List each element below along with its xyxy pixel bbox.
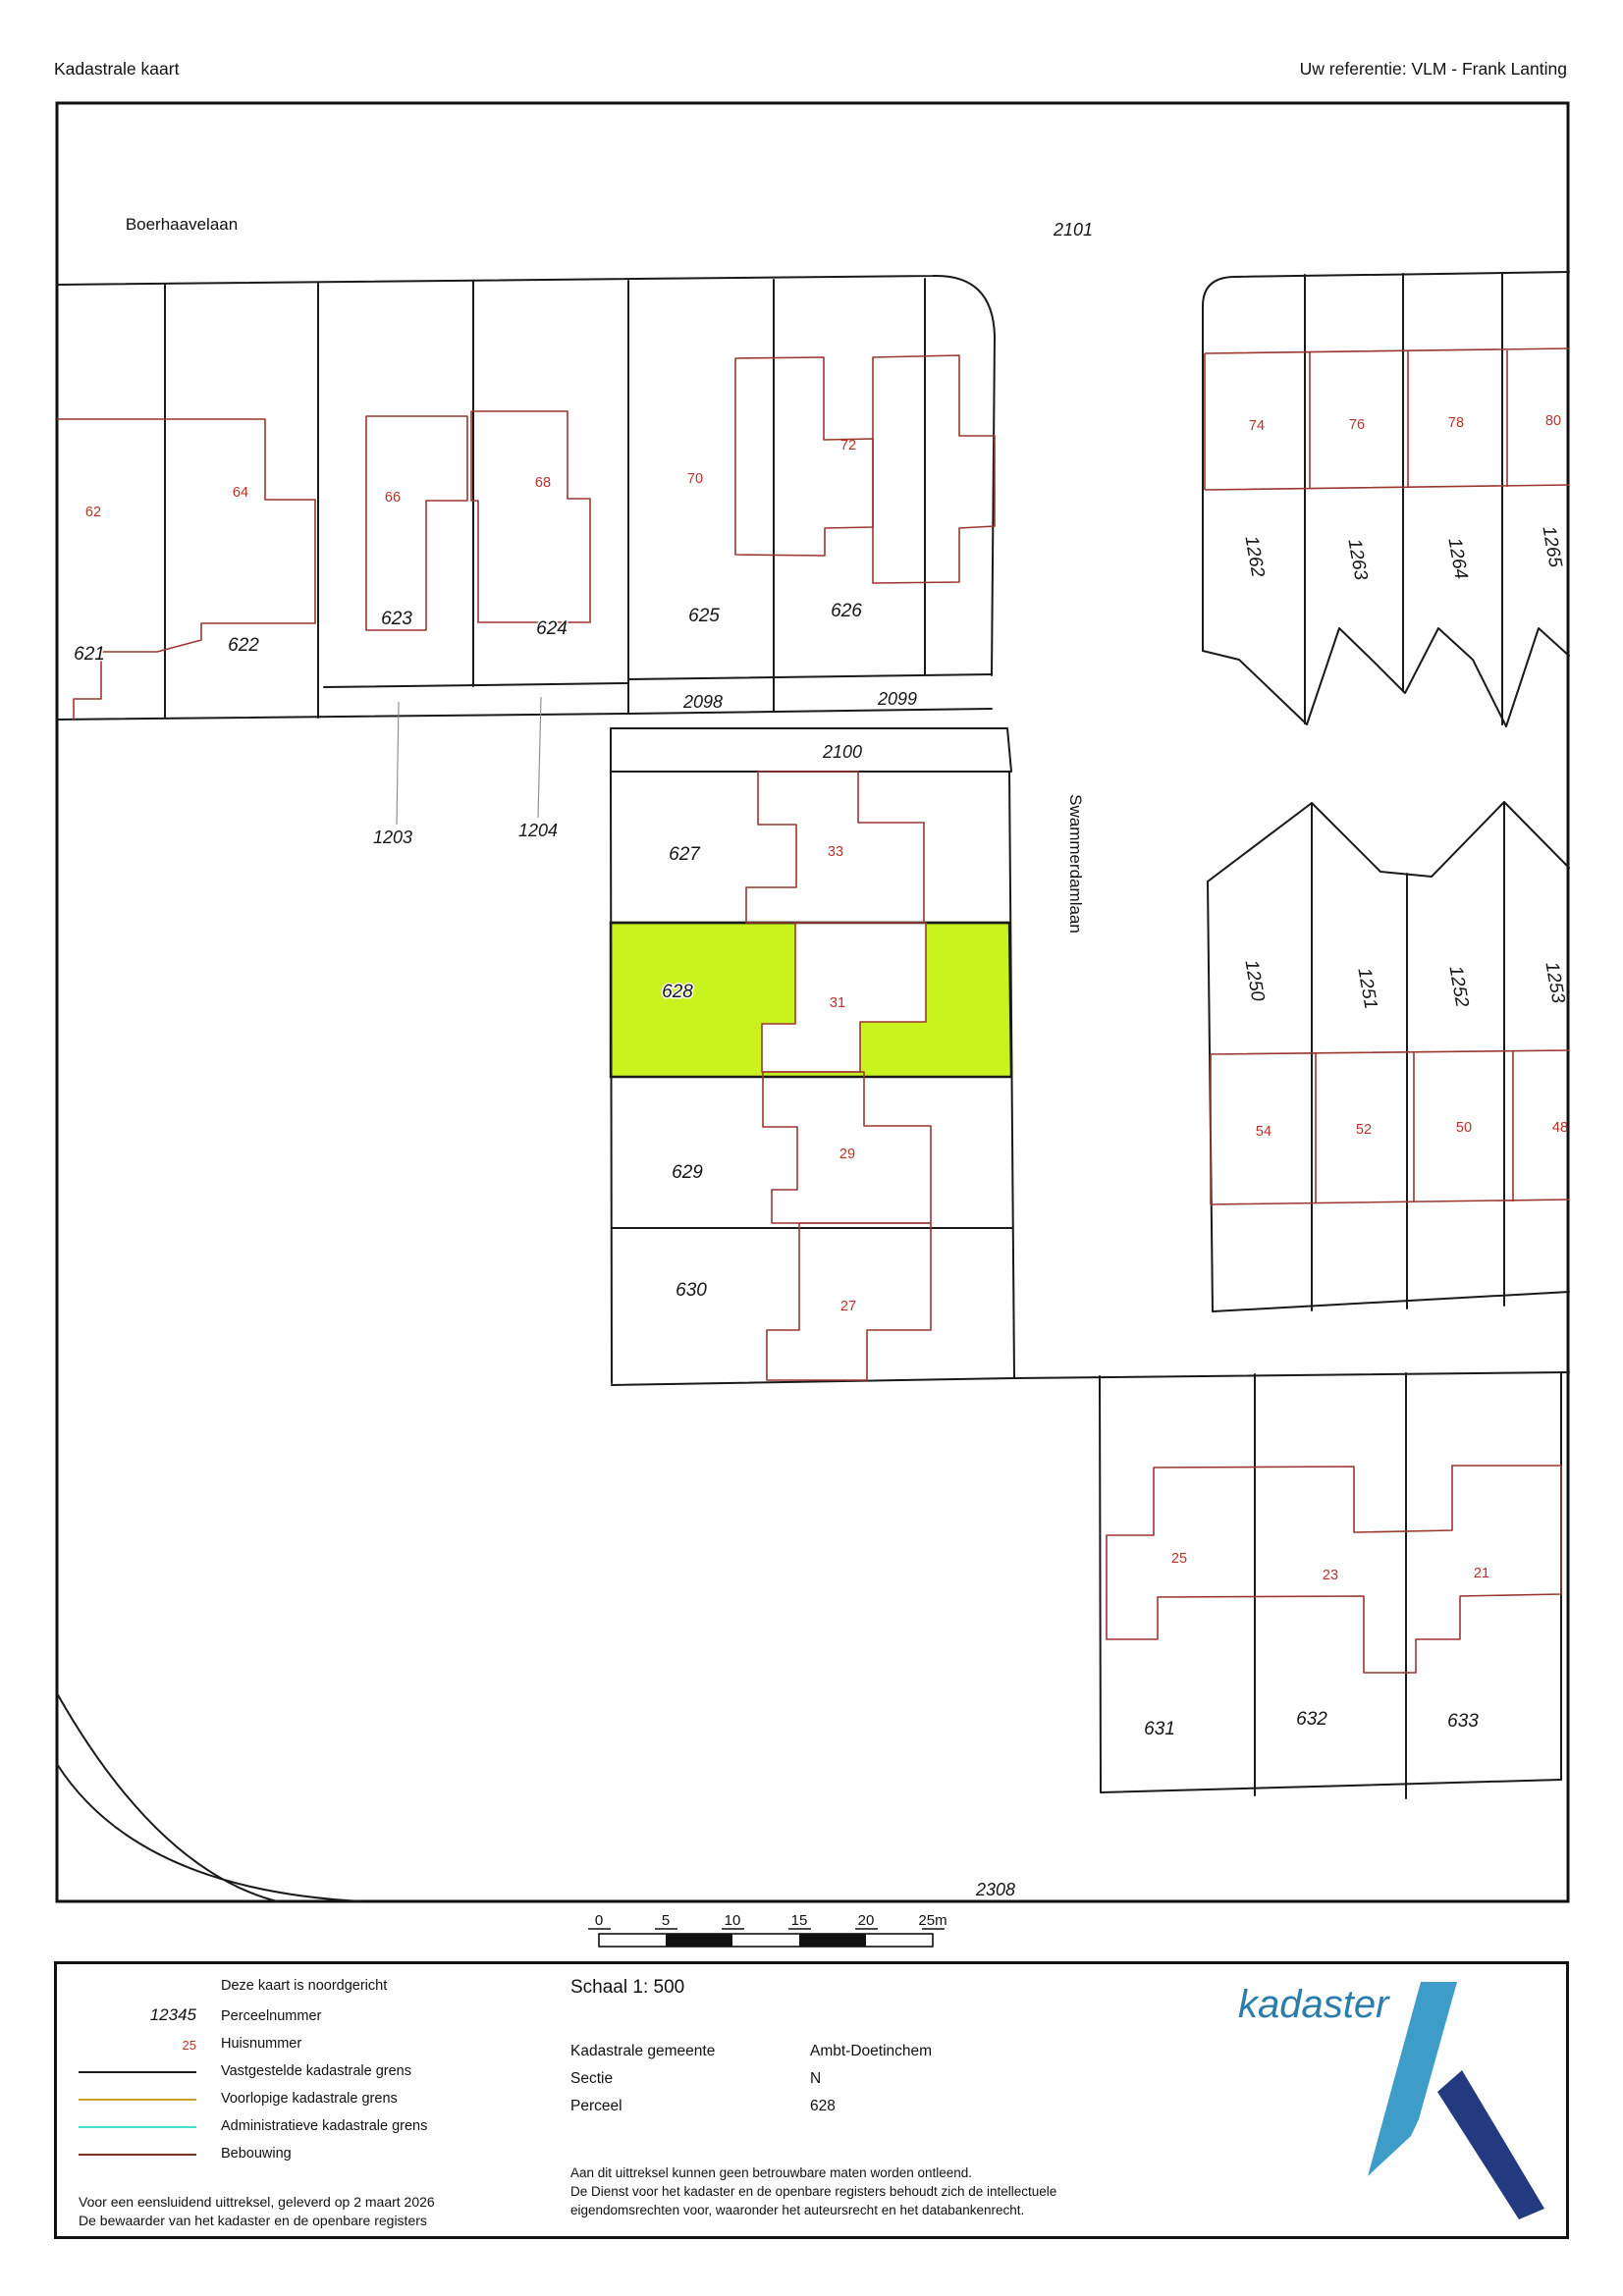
street-label-swammerdamlaan: Swammerdamlaan bbox=[1066, 794, 1085, 934]
parcel-label-621: 621 bbox=[74, 644, 105, 665]
house-number-80: 80 bbox=[1545, 413, 1561, 429]
parcel-label-623: 623 bbox=[381, 609, 412, 629]
scale-text: Schaal 1: 500 bbox=[570, 1977, 684, 1999]
legend-provisional-boundary-line bbox=[79, 2099, 196, 2101]
municipality-label: Kadastrale gemeente bbox=[570, 2043, 715, 2060]
legend-parcelnumber-sample: 12345 bbox=[77, 2005, 196, 2025]
parcel-label-632: 632 bbox=[1296, 1709, 1327, 1730]
parcel-label: Perceel bbox=[570, 2098, 622, 2115]
parcel-label-624: 624 bbox=[536, 618, 568, 639]
house-number-29: 29 bbox=[839, 1147, 855, 1162]
kadaster-logo-dark-blade bbox=[1437, 2070, 1544, 2219]
legend-administrative-boundary-line bbox=[79, 2126, 196, 2128]
scalebar-tick-25m: 25m bbox=[918, 1912, 947, 1929]
document-title: Kadastrale kaart bbox=[54, 59, 179, 80]
kadaster-logo-text: kadaster bbox=[1238, 1983, 1390, 2026]
area-label-2100: 2100 bbox=[822, 742, 862, 762]
house-number-76: 76 bbox=[1349, 417, 1365, 433]
house-number-33: 33 bbox=[828, 844, 843, 860]
parcel-boundary bbox=[1100, 1376, 1101, 1792]
parcel-label-629: 629 bbox=[672, 1162, 703, 1183]
house-number-68: 68 bbox=[535, 475, 551, 491]
section-label: Sectie bbox=[570, 2070, 613, 2088]
parcel-label-622: 622 bbox=[228, 635, 259, 656]
disclaimer-line: De Dienst voor het kadaster en de openba… bbox=[570, 2182, 1056, 2201]
section-value: N bbox=[810, 2070, 821, 2088]
house-number-74: 74 bbox=[1249, 418, 1265, 434]
legend-administrative-boundary-label: Administratieve kadastrale grens bbox=[221, 2118, 427, 2134]
legend-housenumber-label: Huisnummer bbox=[221, 2036, 301, 2052]
house-number-48: 48 bbox=[1552, 1120, 1568, 1136]
house-number-52: 52 bbox=[1356, 1122, 1372, 1138]
house-number-21: 21 bbox=[1474, 1566, 1489, 1581]
house-number-25: 25 bbox=[1171, 1551, 1187, 1567]
kadaster-logo: kadaster bbox=[1220, 1970, 1603, 2231]
legend-parcelnumber-label: Perceelnummer bbox=[221, 2008, 321, 2024]
house-number-27: 27 bbox=[840, 1299, 856, 1314]
parcel-label-630: 630 bbox=[676, 1280, 707, 1301]
legend-north-note: Deze kaart is noordgericht bbox=[221, 1978, 387, 1994]
area-label-1204: 1204 bbox=[518, 821, 558, 840]
scale-bar bbox=[599, 1934, 933, 1947]
house-number-62: 62 bbox=[85, 505, 101, 520]
scalebar-tick-0: 0 bbox=[595, 1912, 603, 1929]
parcel-value: 628 bbox=[810, 2098, 836, 2115]
area-label-2099: 2099 bbox=[877, 689, 917, 709]
legend-fixed-boundary-line bbox=[79, 2071, 196, 2073]
legend-fixed-boundary-label: Vastgestelde kadastrale grens bbox=[221, 2063, 411, 2079]
legend-keeper-note: De bewaarder van het kadaster en de open… bbox=[79, 2213, 427, 2228]
scalebar-tick-5: 5 bbox=[662, 1912, 670, 1929]
parcel-label-633: 633 bbox=[1447, 1711, 1479, 1732]
house-number-23: 23 bbox=[1323, 1568, 1338, 1583]
house-number-78: 78 bbox=[1448, 415, 1464, 431]
kadaster-logo-graphic: kadaster bbox=[1220, 1970, 1603, 2231]
legend-provisional-boundary-label: Voorlopige kadastrale grens bbox=[221, 2091, 398, 2107]
municipality-value: Ambt-Doetinchem bbox=[810, 2043, 932, 2060]
area-label-1203: 1203 bbox=[373, 828, 412, 847]
scalebar-tick-15: 15 bbox=[791, 1912, 808, 1929]
house-number-50: 50 bbox=[1456, 1120, 1472, 1136]
area-label-2098: 2098 bbox=[682, 692, 723, 712]
house-number-31: 31 bbox=[830, 995, 845, 1011]
scale-bar-segment bbox=[666, 1934, 732, 1947]
legend-housenumber-sample: 25 bbox=[77, 2038, 196, 2053]
disclaimer-text: Aan dit uittreksel kunnen geen betrouwba… bbox=[570, 2163, 1056, 2219]
area-label-2308: 2308 bbox=[975, 1880, 1015, 1899]
scalebar-tick-10: 10 bbox=[725, 1912, 741, 1929]
area-label-2101: 2101 bbox=[1053, 220, 1093, 240]
house-number-70: 70 bbox=[687, 471, 703, 487]
legend-building-line bbox=[79, 2154, 196, 2156]
kadastrale-kaart-page: BoerhaavelaanSwammerdamlaan2101209820992… bbox=[0, 0, 1623, 2296]
parcel-label-627: 627 bbox=[669, 844, 701, 865]
house-number-66: 66 bbox=[385, 490, 401, 506]
scale-bar-segment bbox=[799, 1934, 866, 1947]
parcel-label-625: 625 bbox=[688, 606, 720, 626]
parcel-label-631: 631 bbox=[1144, 1719, 1175, 1739]
parcel-label-628: 628 bbox=[662, 982, 693, 1002]
disclaimer-line: eigendomsrechten voor, waaronder het aut… bbox=[570, 2201, 1056, 2219]
document-reference: Uw referentie: VLM - Frank Lanting bbox=[1300, 59, 1567, 80]
parcel-label-626: 626 bbox=[831, 601, 862, 621]
disclaimer-line: Aan dit uittreksel kunnen geen betrouwba… bbox=[570, 2163, 1056, 2182]
scalebar-tick-20: 20 bbox=[858, 1912, 875, 1929]
house-number-54: 54 bbox=[1256, 1124, 1271, 1140]
legend-extract-note: Voor een eensluidend uittreksel, gelever… bbox=[79, 2194, 435, 2210]
house-number-72: 72 bbox=[840, 438, 856, 454]
legend-box: Deze kaart is noordgericht 12345 Perceel… bbox=[54, 1961, 1569, 2239]
cadastral-map: BoerhaavelaanSwammerdamlaan2101209820992… bbox=[0, 0, 1623, 2296]
house-number-64: 64 bbox=[233, 485, 248, 501]
street-label-boerhaavelaan: Boerhaavelaan bbox=[126, 215, 238, 234]
legend-building-label: Bebouwing bbox=[221, 2146, 292, 2162]
